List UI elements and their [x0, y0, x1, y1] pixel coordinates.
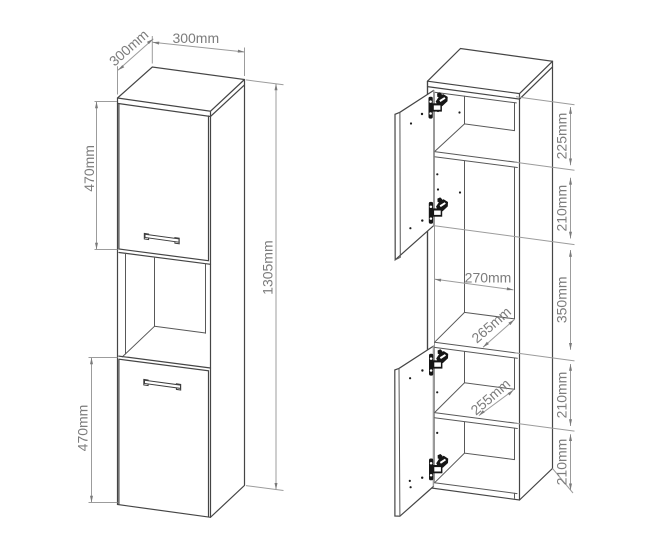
svg-text:1305mm: 1305mm: [259, 240, 275, 294]
svg-text:210mm: 210mm: [554, 185, 570, 232]
svg-text:225mm: 225mm: [554, 113, 570, 160]
svg-text:210mm: 210mm: [554, 372, 570, 419]
svg-text:470mm: 470mm: [75, 405, 91, 452]
svg-text:210mm: 210mm: [554, 439, 570, 486]
svg-text:300mm: 300mm: [172, 30, 219, 46]
svg-text:350mm: 350mm: [554, 276, 570, 323]
svg-text:470mm: 470mm: [81, 145, 97, 192]
svg-text:270mm: 270mm: [465, 269, 512, 285]
